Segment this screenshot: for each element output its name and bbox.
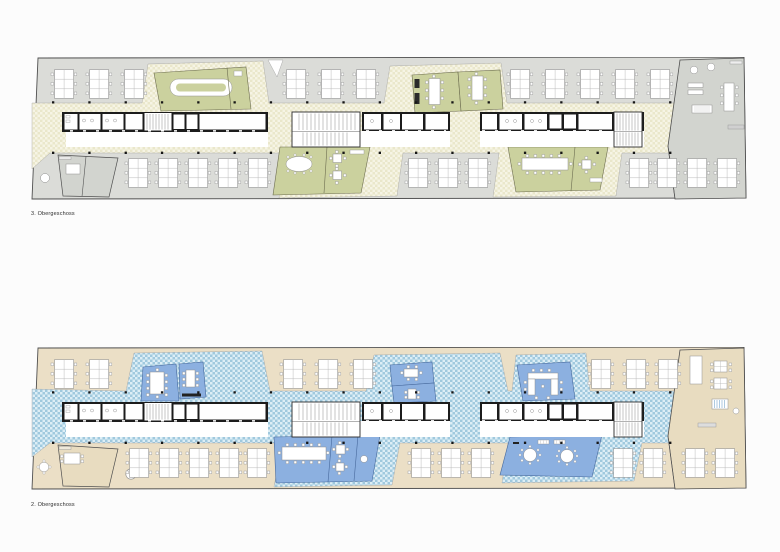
meeting-zone-mid [390,362,436,403]
desk-clusters-bottom [126,449,738,478]
meeting-zone-b [412,70,503,113]
floor-plan-2og [30,347,747,490]
floor-plan-3og [30,57,747,200]
meeting-zone-a [154,67,251,111]
building-slab-3og [32,57,746,199]
meeting-zone-d [508,147,608,192]
building-slab-2og [32,347,746,489]
plan-label-3og: 3. Obergeschoss [31,212,75,218]
meeting-zone-left [141,362,206,401]
round-table-zone [500,435,602,477]
conference-zone [274,435,380,483]
meeting-zone-c [273,147,370,195]
plan-label-2og: 2. Obergeschoss [31,503,75,509]
meeting-zone-u [517,362,575,401]
drawing-sheet: 3. Obergeschoss [0,0,780,552]
desk-clusters-top [51,70,673,99]
